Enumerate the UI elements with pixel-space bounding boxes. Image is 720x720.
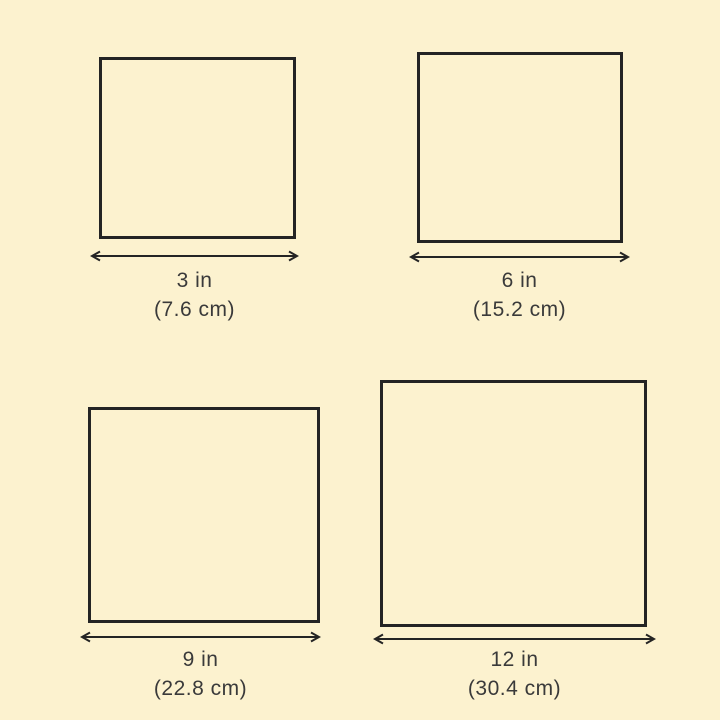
size-label-cm: (22.8 cm) bbox=[80, 674, 321, 703]
size-label-cm: (7.6 cm) bbox=[90, 295, 299, 324]
size-label-cm: (15.2 cm) bbox=[409, 295, 630, 324]
size-label-6in: 6 in (15.2 cm) bbox=[409, 266, 630, 324]
width-arrow-icon bbox=[90, 250, 299, 262]
size-label-12in: 12 in (30.4 cm) bbox=[373, 645, 656, 703]
size-label-cm: (30.4 cm) bbox=[373, 674, 656, 703]
size-label-inches: 12 in bbox=[373, 645, 656, 674]
size-label-inches: 9 in bbox=[80, 645, 321, 674]
size-label-inches: 6 in bbox=[409, 266, 630, 295]
size-label-3in: 3 in (7.6 cm) bbox=[90, 266, 299, 324]
square-6in bbox=[417, 52, 623, 243]
size-label-9in: 9 in (22.8 cm) bbox=[80, 645, 321, 703]
width-arrow-icon bbox=[409, 251, 630, 263]
square-9in bbox=[88, 407, 320, 623]
square-3in bbox=[99, 57, 296, 239]
width-arrow-icon bbox=[373, 633, 656, 645]
size-label-inches: 3 in bbox=[90, 266, 299, 295]
square-12in bbox=[380, 380, 647, 627]
size-comparison-diagram: 3 in (7.6 cm) 6 in (15.2 cm) 9 in (22.8 … bbox=[0, 0, 720, 720]
width-arrow-icon bbox=[80, 631, 321, 643]
